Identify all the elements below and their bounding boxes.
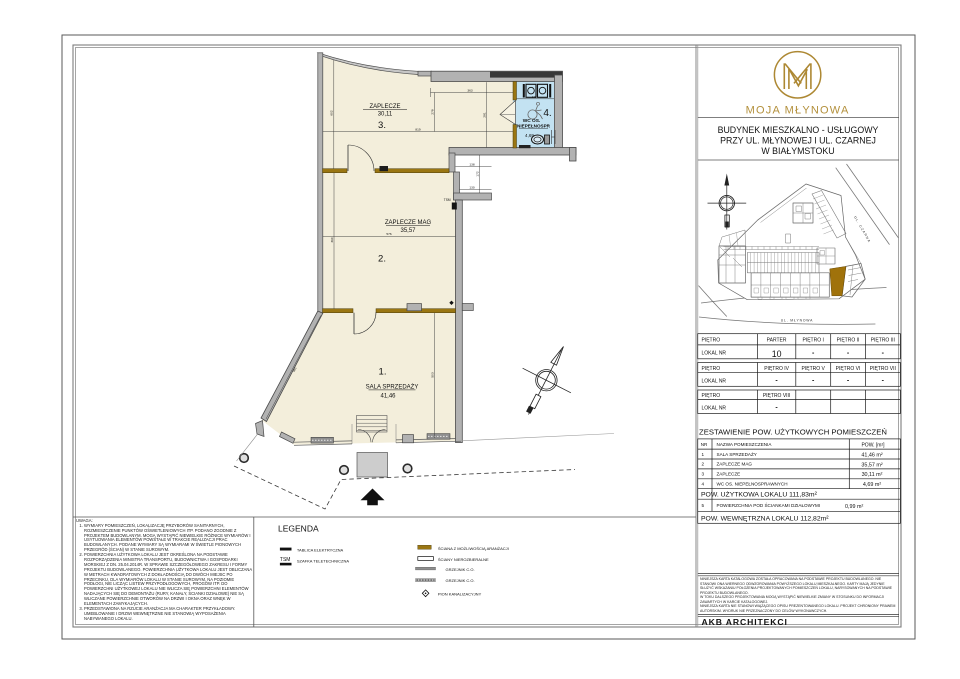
svg-text:3: 3 xyxy=(702,472,705,477)
svg-text:SZAFKA TELETECHNICZNA: SZAFKA TELETECHNICZNA xyxy=(297,559,349,564)
svg-text:4: 4 xyxy=(702,482,705,487)
svg-text:PIĘTRO IV: PIĘTRO IV xyxy=(764,366,789,372)
svg-text:363: 363 xyxy=(467,88,472,92)
svg-text:BUDYNEK MIESZKALNO - USŁUGOWY: BUDYNEK MIESZKALNO - USŁUGOWY xyxy=(718,125,879,135)
svg-text:PIĘTRO VIII: PIĘTRO VIII xyxy=(763,393,791,399)
svg-text:LOKAL NR: LOKAL NR xyxy=(702,379,727,385)
svg-text:POW. UŻYTKOWA LOKALU 111,83m²: POW. UŻYTKOWA LOKALU 111,83m² xyxy=(701,490,818,499)
svg-text:LOKAL NR: LOKAL NR xyxy=(702,406,727,412)
svg-text:ŚCIANY NIEROZBIERALNE: ŚCIANY NIEROZBIERALNE xyxy=(438,557,489,562)
svg-text:138: 138 xyxy=(469,162,474,166)
svg-text:10: 10 xyxy=(772,349,782,359)
svg-text:30,11 m²: 30,11 m² xyxy=(862,472,883,478)
svg-text:NR: NR xyxy=(701,442,708,447)
svg-text:PARTER: PARTER xyxy=(767,338,787,344)
svg-text:SALA SPRZEDAŻY: SALA SPRZEDAŻY xyxy=(366,384,419,391)
svg-text:278: 278 xyxy=(430,109,434,114)
svg-text:PIĘTRO III: PIĘTRO III xyxy=(871,338,895,344)
svg-text:PIĘTRO V: PIĘTRO V xyxy=(802,366,826,372)
svg-text:GRZEJNIK C.O.: GRZEJNIK C.O. xyxy=(446,578,475,583)
svg-text:130: 130 xyxy=(469,185,474,189)
svg-text:ŚCIANA Z MOŻLIWOŚCIĄ ARANŻA: ŚCIANA Z MOŻLIWOŚCIĄ ARANŻACJI xyxy=(438,546,509,551)
svg-text:NAZWA POMIESZCZENIA: NAZWA POMIESZCZENIA xyxy=(717,442,773,447)
svg-text:4,69: 4,69 xyxy=(525,133,534,138)
svg-text:POWIERZCHNIA POD ŚCIANKAMI: POWIERZCHNIA POD ŚCIANKAMI DZIAŁOWYMI xyxy=(717,501,821,508)
svg-text:PIĘTRO VII: PIĘTRO VII xyxy=(870,366,896,372)
svg-text:503: 503 xyxy=(430,372,434,377)
svg-text:PIĘTRO: PIĘTRO xyxy=(702,338,721,344)
svg-text:GRZEJNIK C.O.: GRZEJNIK C.O. xyxy=(446,567,475,572)
svg-text:W BIAŁYMSTOKU: W BIAŁYMSTOKU xyxy=(761,146,834,156)
svg-text:POW. [m²]: POW. [m²] xyxy=(861,443,885,449)
svg-text:2.: 2. xyxy=(378,254,386,265)
svg-text:5: 5 xyxy=(702,503,705,508)
svg-text:ZESTAWIENIE POW. UŻYTKOWYCH PO: ZESTAWIENIE POW. UŻYTKOWYCH POMIESZCZEŃ xyxy=(699,428,887,437)
svg-text:LOKAL NR: LOKAL NR xyxy=(702,351,727,357)
svg-text:576: 576 xyxy=(386,232,391,236)
svg-text:41,46: 41,46 xyxy=(380,393,396,399)
svg-text:35,57 m²: 35,57 m² xyxy=(861,462,882,468)
svg-text:TSM: TSM xyxy=(280,557,291,563)
svg-text:AKB ARCHITEKCI: AKB ARCHITEKCI xyxy=(702,617,788,627)
svg-text:PIĘTRO VI: PIĘTRO VI xyxy=(836,366,861,372)
svg-text:MOJA MŁYNOWA: MOJA MŁYNOWA xyxy=(746,105,850,117)
svg-text:281: 281 xyxy=(482,112,486,117)
svg-text:PIĘTRO: PIĘTRO xyxy=(702,393,721,399)
svg-text:819: 819 xyxy=(415,127,420,131)
svg-text:SALA SPRZEDAŻY: SALA SPRZEDAŻY xyxy=(717,451,757,457)
svg-text:PRZY UL. MŁYNOWEJ I UL. CZA: PRZY UL. MŁYNOWEJ I UL. CZARNEJ xyxy=(720,136,876,146)
svg-text:PIĘTRO: PIĘTRO xyxy=(702,366,721,372)
svg-text:PION KANALIZACYJNY: PION KANALIZACYJNY xyxy=(438,591,482,596)
svg-text:41,46 m²: 41,46 m² xyxy=(861,452,882,458)
svg-text:360: 360 xyxy=(330,237,334,242)
svg-text:UL. MŁYNOWA: UL. MŁYNOWA xyxy=(781,319,813,323)
svg-text:35,57: 35,57 xyxy=(400,228,416,234)
svg-text:1: 1 xyxy=(702,452,705,457)
svg-text:POW. WEWNĘTRZNA LOKALU 112,82: POW. WEWNĘTRZNA LOKALU 112,82m² xyxy=(701,515,829,522)
svg-text:172: 172 xyxy=(475,171,479,176)
svg-text:TABLICA ELEKTRYCZNA: TABLICA ELEKTRYCZNA xyxy=(297,547,344,552)
svg-text:142: 142 xyxy=(532,95,537,99)
svg-text:LEGENDA: LEGENDA xyxy=(278,524,319,534)
svg-text:1.: 1. xyxy=(379,367,387,378)
svg-text:TSM: TSM xyxy=(444,198,451,202)
svg-text:WC OS. NIEPEŁNOSPRAWNYCH: WC OS. NIEPEŁNOSPRAWNYCH xyxy=(717,482,788,487)
svg-text:NIEPEŁNOSPR: NIEPEŁNOSPR xyxy=(517,124,551,129)
svg-text:2: 2 xyxy=(702,462,705,467)
svg-text:602: 602 xyxy=(330,110,334,115)
svg-text:PIĘTRO II: PIĘTRO II xyxy=(837,338,860,344)
svg-text:3.: 3. xyxy=(378,120,386,131)
svg-text:PIĘTRO I: PIĘTRO I xyxy=(802,338,823,344)
svg-text:ZAPLECZE MAG: ZAPLECZE MAG xyxy=(717,462,753,467)
svg-text:ZAPLECZE: ZAPLECZE xyxy=(717,472,741,477)
svg-text:4,69 m²: 4,69 m² xyxy=(863,482,881,488)
svg-text:0,99 m²: 0,99 m² xyxy=(845,504,863,510)
svg-text:30,11: 30,11 xyxy=(378,112,393,118)
svg-text:4.: 4. xyxy=(543,108,551,119)
